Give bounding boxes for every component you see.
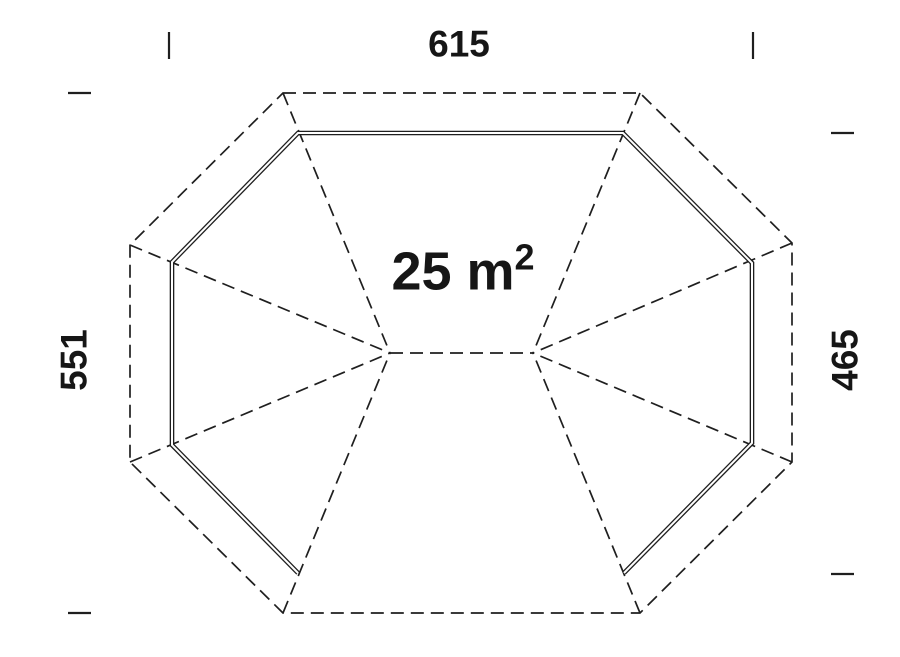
floor-plan-canvas: 615 551 465 25 m2	[0, 0, 900, 657]
area-exponent: 2	[515, 237, 535, 278]
area-label: 25 m2	[391, 240, 534, 299]
floor-plan-svg	[0, 0, 900, 657]
area-value: 25 m	[391, 242, 514, 302]
dimension-left-height-label: 551	[56, 329, 93, 391]
dimension-width-label: 615	[428, 26, 490, 63]
roof-hip-line	[130, 245, 390, 353]
dimension-right-height-label: 465	[827, 329, 864, 391]
